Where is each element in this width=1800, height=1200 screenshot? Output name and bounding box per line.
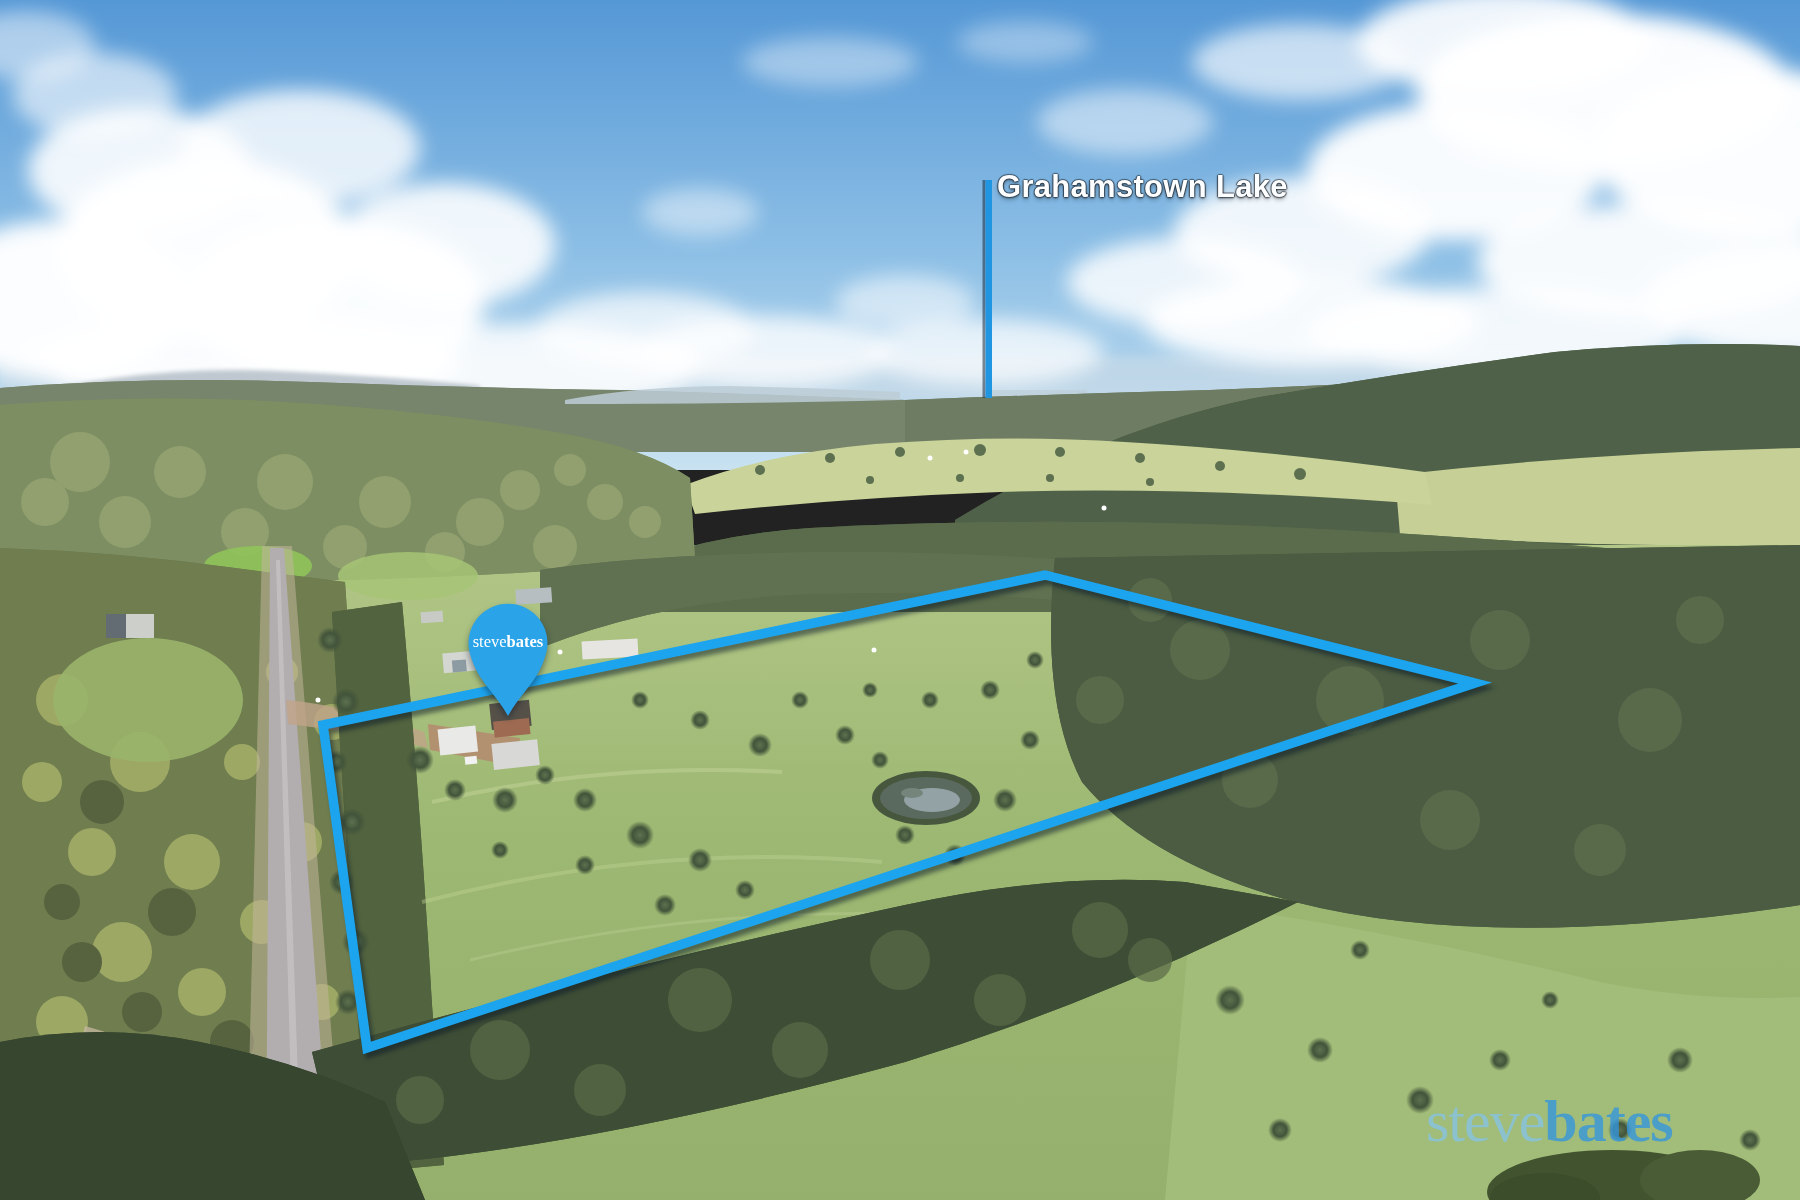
neighbour-house	[515, 587, 552, 604]
neighbour-clearing	[53, 638, 243, 762]
lake-pointer-line	[983, 180, 993, 398]
landscape-layer	[0, 0, 1800, 1200]
far-left-house-roof	[106, 614, 126, 638]
pin-brand-last: bates	[507, 632, 544, 651]
white-shed	[438, 726, 479, 756]
pin-brand-label: stevebates	[466, 632, 550, 652]
cottage-roof	[452, 659, 467, 672]
pin-brand-first: steve	[473, 632, 507, 651]
small-shed	[421, 611, 444, 624]
white-arena-shed	[582, 639, 639, 660]
aerial-property-photo: Grahamstown Lake stevebates stevebates	[0, 0, 1800, 1200]
watermark-first: steve	[1426, 1088, 1544, 1154]
lake-label: Grahamstown Lake	[997, 170, 1288, 204]
farm-dam-pond	[872, 771, 980, 825]
watermark-last: bates	[1544, 1088, 1672, 1154]
watermark-logo: stevebates	[1426, 1091, 1673, 1151]
vehicle	[465, 756, 478, 765]
clearing	[338, 552, 478, 600]
machinery-shed	[491, 739, 539, 770]
